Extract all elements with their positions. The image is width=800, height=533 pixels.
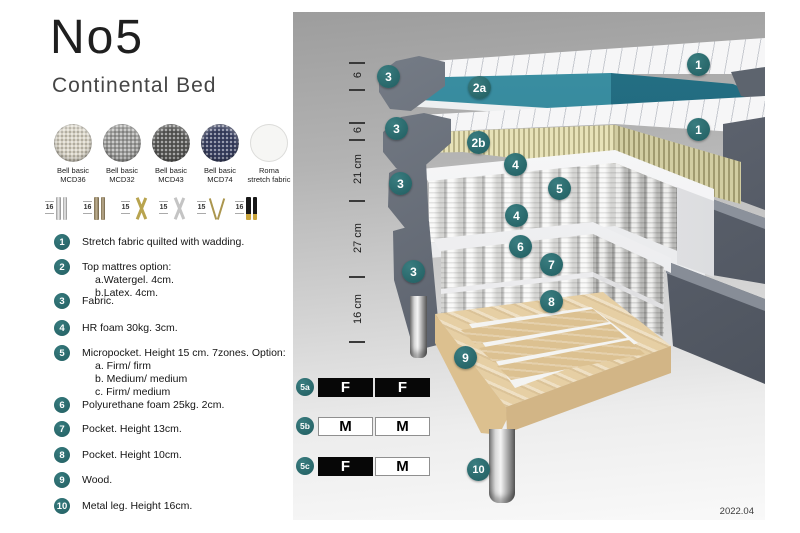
feature-text: HR foam 30kg. 3cm. <box>82 322 178 335</box>
leg-option-chrome: 16 <box>45 189 79 225</box>
fabric-code: MCD32 <box>106 175 138 184</box>
fabric-swatch-circle <box>54 124 92 162</box>
page-subtitle: Continental Bed <box>52 74 216 98</box>
feature-item-5: 5 Micropocket. Height 15 cm. 7zones. Opt… <box>54 345 286 399</box>
leg-icon <box>170 194 188 220</box>
measurement-label: 16 cm <box>352 281 364 337</box>
feature-text: Pocket. Height 13cm. <box>82 423 182 436</box>
feature-number-badge: 9 <box>54 472 70 488</box>
feature-item-6: 6 Polyurethane foam 25kg. 2cm. <box>54 397 224 413</box>
leg-icon <box>208 194 226 220</box>
metal-leg-back <box>410 296 427 358</box>
feature-number-badge: 5 <box>54 345 70 361</box>
firmness-row-5c: F M <box>318 457 430 476</box>
feature-number-badge: 10 <box>54 498 70 514</box>
feature-number-badge: 3 <box>54 293 70 309</box>
leg-height: 15 <box>197 201 206 214</box>
callout-badge-3: 3 <box>402 260 425 283</box>
fabric-code: stretch fabric <box>248 175 291 184</box>
callout-badge-3: 3 <box>377 65 400 88</box>
callout-badge-6: 6 <box>509 235 532 258</box>
firmness-cell: F <box>318 378 373 397</box>
fabric-swatch-roma: Roma stretch fabric <box>247 124 291 184</box>
firmness-cell: M <box>375 417 430 436</box>
callout-badge-4: 4 <box>505 204 528 227</box>
measurement-label: 27 cm <box>352 210 364 266</box>
fabric-swatch-mcd43: Bell basic MCD43 <box>149 124 193 184</box>
firmness-option-badge-5a: 5a <box>296 378 314 396</box>
callout-badge-5: 5 <box>548 177 571 200</box>
fabric-name: Bell basic <box>57 166 89 175</box>
fabric-swatch-label: Bell basic MCD32 <box>106 166 138 184</box>
firmness-row-5b: M M <box>318 417 430 436</box>
leg-height: 16 <box>45 201 54 214</box>
fabric-code: MCD36 <box>57 175 89 184</box>
feature-text: Stretch fabric quilted with wadding. <box>82 236 244 249</box>
ruler-tick <box>349 341 365 343</box>
feature-text: Polyurethane foam 25kg. 2cm. <box>82 399 224 412</box>
leg-option-black-gold: 16 <box>235 189 269 225</box>
callout-badge-2a: 2a <box>468 76 491 99</box>
feature-item-9: 9 Wood. <box>54 472 112 488</box>
fabric-swatch-label: Bell basic MCD43 <box>155 166 187 184</box>
leg-options-row: 16 16 15 15 15 16 <box>45 189 269 225</box>
feature-item-3: 3 Fabric. <box>54 293 114 309</box>
callout-badge-4: 4 <box>504 153 527 176</box>
fabric-swatch-mcd74: Bell basic MCD74 <box>198 124 242 184</box>
feature-number-badge: 4 <box>54 320 70 336</box>
fabric-name: Roma <box>248 166 291 175</box>
callout-badge-1: 1 <box>687 53 710 76</box>
version-label: 2022.04 <box>720 506 754 517</box>
firmness-cell: M <box>318 417 373 436</box>
fabric-swatch-label: Bell basic MCD74 <box>204 166 236 184</box>
measurement-label: 6 <box>352 47 364 103</box>
firmness-row-5a: F F <box>318 378 430 397</box>
callout-badge-3: 3 <box>389 172 412 195</box>
feature-number-badge: 8 <box>54 447 70 463</box>
feature-item-7: 7 Pocket. Height 13cm. <box>54 421 182 437</box>
measurement-label: 21 cm <box>352 141 364 197</box>
callout-badge-1: 1 <box>687 118 710 141</box>
callout-badge-3: 3 <box>385 117 408 140</box>
feature-number-badge: 2 <box>54 259 70 275</box>
leg-icon <box>132 194 150 220</box>
callout-badge-7: 7 <box>540 253 563 276</box>
fabric-code: MCD43 <box>155 175 187 184</box>
fabric-swatch-circle <box>152 124 190 162</box>
feature-number-badge: 1 <box>54 234 70 250</box>
feature-number-badge: 7 <box>54 421 70 437</box>
firmness-cell: F <box>318 457 373 476</box>
leg-option-hairpin: 15 <box>197 189 231 225</box>
ruler-tick <box>349 276 365 278</box>
leg-icon <box>94 194 105 220</box>
leg-icon <box>56 194 67 220</box>
feature-item-1: 1 Stretch fabric quilted with wadding. <box>54 234 244 250</box>
feature-item-4: 4 HR foam 30kg. 3cm. <box>54 320 178 336</box>
fabric-name: Bell basic <box>204 166 236 175</box>
fabric-code: MCD74 <box>204 175 236 184</box>
callout-badge-10: 10 <box>467 458 490 481</box>
fabric-name: Bell basic <box>106 166 138 175</box>
firmness-cell: M <box>375 457 430 476</box>
leg-icon <box>246 194 257 220</box>
fabric-swatch-mcd32: Bell basic MCD32 <box>100 124 144 184</box>
page-title: No5 <box>50 12 144 64</box>
feature-text: Metal leg. Height 16cm. <box>82 500 192 513</box>
fabric-swatch-label: Bell basic MCD36 <box>57 166 89 184</box>
leg-height: 16 <box>235 201 244 214</box>
leg-option-silver-cross: 15 <box>159 189 193 225</box>
firmness-cell: F <box>375 378 430 397</box>
feature-number-badge: 6 <box>54 397 70 413</box>
feature-item-10: 10 Metal leg. Height 16cm. <box>54 498 192 514</box>
callout-badge-9: 9 <box>454 346 477 369</box>
fabric-swatch-circle <box>103 124 141 162</box>
fabric-swatch-label: Roma stretch fabric <box>248 166 291 184</box>
feature-text: Fabric. <box>82 295 114 308</box>
bed-cutaway-diagram: 6 6 21 cm 27 cm 16 cm 3 2a 1 3 2b 1 4 <box>293 12 765 520</box>
firmness-option-badge-5b: 5b <box>296 417 314 435</box>
fabric-swatch-circle <box>250 124 288 162</box>
fabric-swatch-mcd36: Bell basic MCD36 <box>51 124 95 184</box>
feature-item-8: 8 Pocket. Height 10cm. <box>54 447 182 463</box>
feature-text: Pocket. Height 10cm. <box>82 449 182 462</box>
firmness-option-badge-5c: 5c <box>296 457 314 475</box>
feature-text: Wood. <box>82 474 112 487</box>
callout-badge-2b: 2b <box>467 131 490 154</box>
leg-height: 15 <box>121 201 130 214</box>
feature-text: Micropocket. Height 15 cm. 7zones. Optio… <box>82 347 286 399</box>
leg-height: 16 <box>83 201 92 214</box>
ruler-tick <box>349 200 365 202</box>
leg-option-bronze: 16 <box>83 189 117 225</box>
metal-leg-front <box>489 429 515 503</box>
fabric-swatch-row: Bell basic MCD36 Bell basic MCD32 Bell b… <box>51 124 291 184</box>
fabric-swatch-circle <box>201 124 239 162</box>
callout-badge-8: 8 <box>540 290 563 313</box>
fabric-name: Bell basic <box>155 166 187 175</box>
leg-option-gold-cross: 15 <box>121 189 155 225</box>
leg-height: 15 <box>159 201 168 214</box>
